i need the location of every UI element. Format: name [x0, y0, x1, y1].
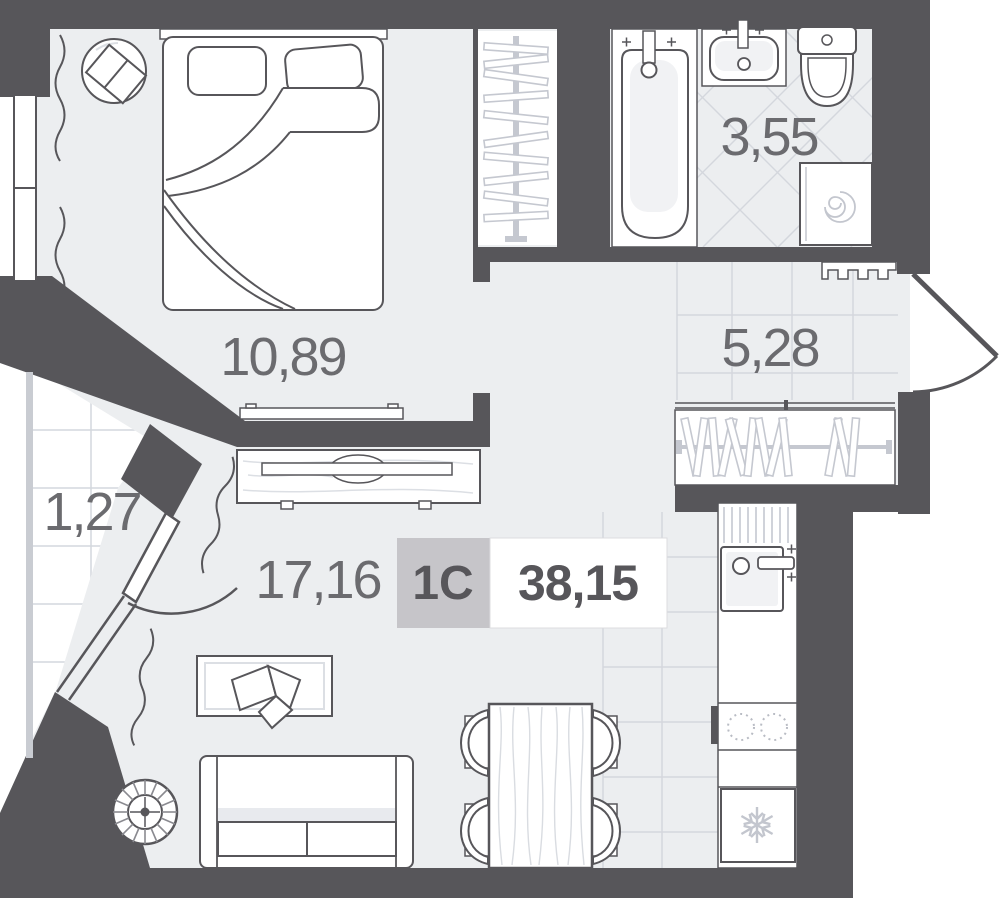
armchair-icon [82, 39, 146, 103]
living-area-label: 17,16 [255, 550, 380, 610]
bedroom-wardrobe-icon [478, 31, 557, 245]
bathroom-area-label: 3,55 [720, 107, 817, 167]
tv-stand-icon [237, 450, 480, 509]
double-bed-icon [163, 37, 383, 310]
balcony-area-label: 1,27 [43, 482, 140, 542]
bedroom-window [14, 95, 36, 281]
bathtub-icon [612, 29, 697, 247]
dining-table-icon [489, 704, 592, 868]
sofa-icon [200, 756, 413, 868]
hallway-area-label: 5,28 [721, 318, 818, 378]
bedroom-area-label: 10,89 [220, 327, 345, 387]
pouf-icon [113, 780, 177, 844]
kitchen-counter-icon [711, 503, 797, 868]
bathroom-sink-icon [702, 20, 786, 86]
floor-plan-svg: 10,89 3,55 5,28 17,16 1,27 1С 38,15 [0, 0, 1000, 898]
unit-badge: 1С 38,15 [397, 538, 667, 628]
outside-left-strip [0, 95, 14, 280]
fridge-icon [721, 789, 795, 862]
entrance-doorway-floor [910, 274, 1000, 392]
hallway-wardrobe-icon [675, 400, 895, 485]
floor-plan: 10,89 3,55 5,28 17,16 1,27 1С 38,15 [0, 0, 1000, 898]
toilet-icon [798, 27, 856, 106]
unit-type-label: 1С [412, 557, 473, 610]
washing-machine-icon [800, 163, 872, 245]
balcony-glazing [26, 372, 33, 758]
outside-left-lower [0, 363, 26, 815]
unit-total-area: 38,15 [518, 555, 638, 611]
